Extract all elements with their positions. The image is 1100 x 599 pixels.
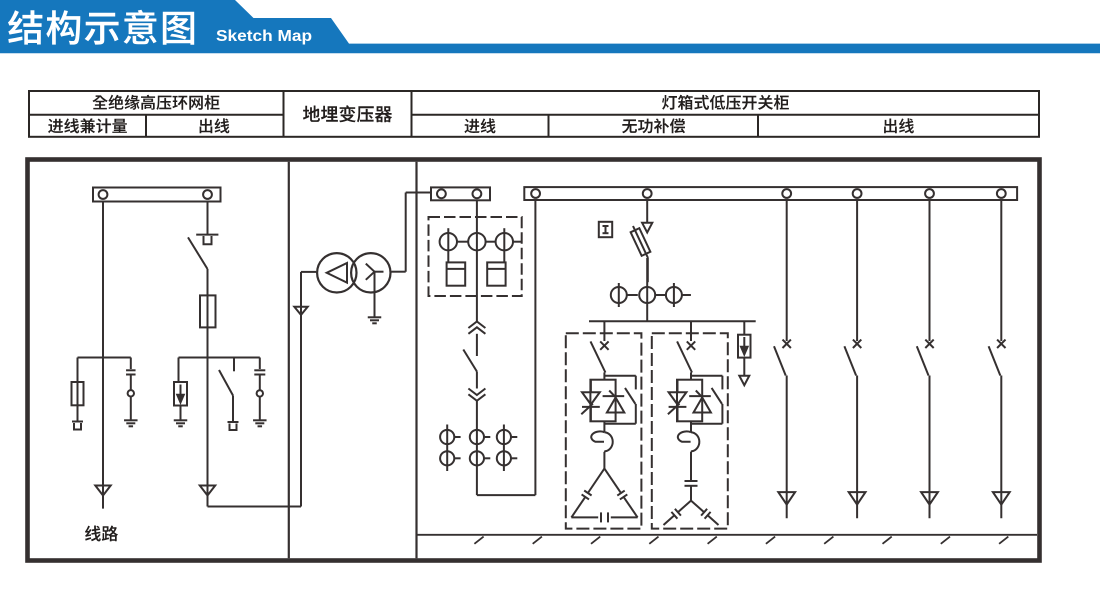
svg-text:Sketch Map: Sketch Map [216,28,312,45]
